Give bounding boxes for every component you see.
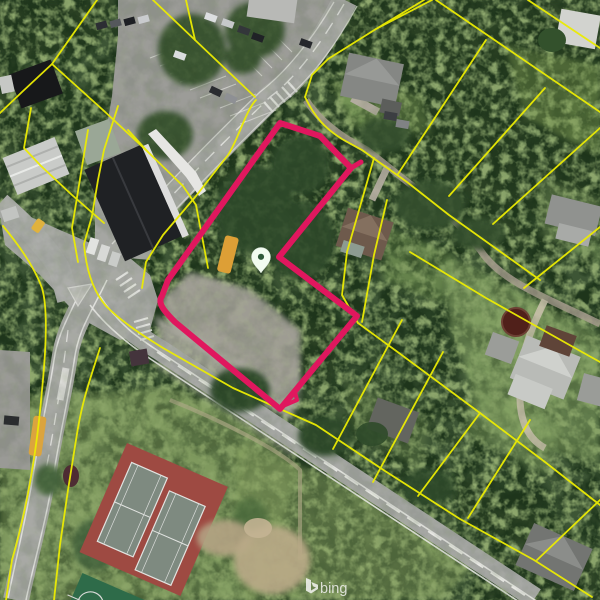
svg-text:bing: bing [320, 581, 347, 597]
